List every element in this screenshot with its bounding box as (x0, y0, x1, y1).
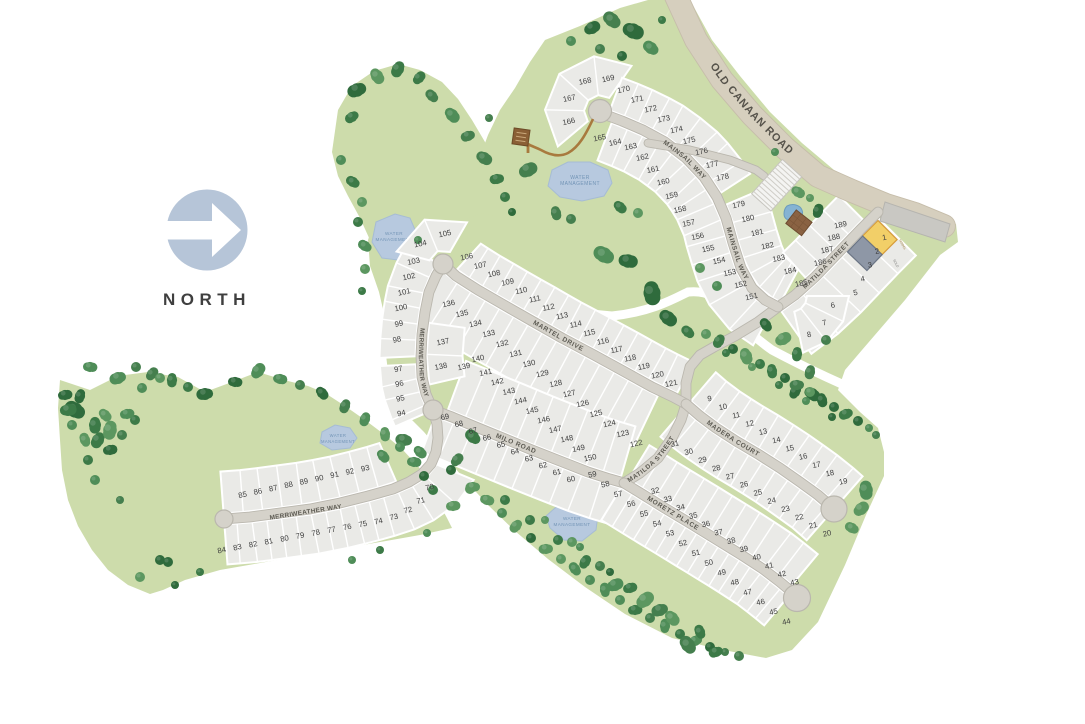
svg-text:69: 69 (440, 412, 450, 423)
svg-text:13: 13 (758, 426, 768, 437)
svg-text:63: 63 (524, 453, 534, 464)
svg-text:75: 75 (358, 519, 368, 530)
svg-text:50: 50 (704, 557, 714, 568)
svg-text:22: 22 (794, 512, 804, 523)
svg-text:19: 19 (838, 476, 848, 487)
svg-text:78: 78 (311, 527, 321, 538)
svg-text:41: 41 (764, 560, 774, 571)
svg-text:92: 92 (345, 466, 355, 477)
svg-text:98: 98 (392, 334, 402, 345)
svg-text:45: 45 (768, 607, 778, 618)
svg-text:38: 38 (726, 535, 736, 546)
svg-text:12: 12 (745, 418, 755, 429)
svg-text:56: 56 (626, 499, 636, 510)
svg-text:93: 93 (360, 463, 370, 474)
svg-text:35: 35 (688, 510, 698, 521)
svg-text:30: 30 (684, 446, 694, 457)
svg-text:29: 29 (697, 455, 707, 466)
svg-text:95: 95 (395, 393, 405, 404)
svg-text:10: 10 (718, 402, 728, 413)
svg-text:33: 33 (663, 494, 673, 505)
svg-text:49: 49 (717, 567, 727, 578)
svg-text:MANAGEMENT: MANAGEMENT (321, 439, 355, 444)
svg-text:76: 76 (342, 522, 352, 533)
svg-text:79: 79 (295, 530, 305, 541)
svg-text:88: 88 (283, 480, 293, 491)
svg-text:91: 91 (329, 470, 339, 481)
svg-text:40: 40 (751, 552, 761, 563)
svg-text:66: 66 (482, 432, 492, 443)
svg-text:52: 52 (678, 538, 688, 549)
svg-text:81: 81 (264, 536, 274, 547)
svg-text:65: 65 (496, 439, 506, 450)
svg-text:15: 15 (785, 443, 795, 454)
svg-text:17: 17 (811, 460, 821, 471)
svg-text:60: 60 (566, 474, 576, 485)
svg-text:18: 18 (825, 468, 835, 479)
svg-text:46: 46 (755, 597, 765, 608)
svg-text:80: 80 (279, 533, 289, 544)
svg-text:71: 71 (416, 495, 426, 506)
svg-text:89: 89 (299, 476, 309, 487)
svg-text:99: 99 (394, 318, 404, 329)
svg-text:53: 53 (665, 528, 675, 539)
svg-text:57: 57 (613, 489, 623, 500)
svg-text:62: 62 (538, 460, 548, 471)
svg-text:51: 51 (691, 548, 701, 559)
svg-text:55: 55 (639, 508, 649, 519)
svg-text:43: 43 (789, 577, 799, 588)
svg-text:WATER: WATER (563, 516, 581, 521)
svg-text:83: 83 (232, 542, 242, 553)
svg-text:72: 72 (403, 505, 413, 516)
svg-text:27: 27 (725, 471, 735, 482)
svg-text:36: 36 (701, 519, 711, 530)
svg-text:NORTH: NORTH (163, 290, 251, 309)
svg-text:WATER: WATER (330, 433, 347, 438)
svg-text:61: 61 (552, 467, 562, 478)
svg-text:21: 21 (808, 520, 818, 531)
svg-text:47: 47 (742, 587, 752, 598)
svg-text:67: 67 (468, 425, 478, 436)
svg-text:23: 23 (780, 504, 790, 515)
svg-text:37: 37 (713, 527, 723, 538)
svg-text:96: 96 (394, 378, 404, 389)
svg-text:73: 73 (389, 512, 399, 523)
svg-text:97: 97 (393, 364, 403, 375)
svg-text:28: 28 (711, 463, 721, 474)
svg-text:MANAGEMENT: MANAGEMENT (554, 522, 591, 527)
svg-text:20: 20 (822, 528, 832, 539)
svg-text:58: 58 (600, 479, 610, 490)
svg-text:31: 31 (670, 438, 680, 449)
svg-text:48: 48 (730, 577, 740, 588)
svg-text:68: 68 (454, 419, 464, 430)
svg-text:32: 32 (650, 485, 660, 496)
svg-text:26: 26 (739, 479, 749, 490)
svg-text:WATER: WATER (385, 231, 403, 236)
svg-text:42: 42 (777, 569, 787, 580)
svg-text:87: 87 (268, 483, 278, 494)
svg-text:16: 16 (798, 451, 808, 462)
svg-text:59: 59 (587, 469, 597, 480)
svg-text:85: 85 (237, 490, 247, 501)
svg-text:86: 86 (253, 486, 263, 497)
svg-text:39: 39 (739, 544, 749, 555)
svg-text:70: 70 (424, 482, 434, 493)
svg-text:77: 77 (326, 525, 336, 536)
svg-text:90: 90 (314, 473, 324, 484)
svg-text:82: 82 (248, 539, 258, 550)
svg-text:MANAGEMENT: MANAGEMENT (560, 181, 600, 187)
svg-text:25: 25 (753, 487, 763, 498)
